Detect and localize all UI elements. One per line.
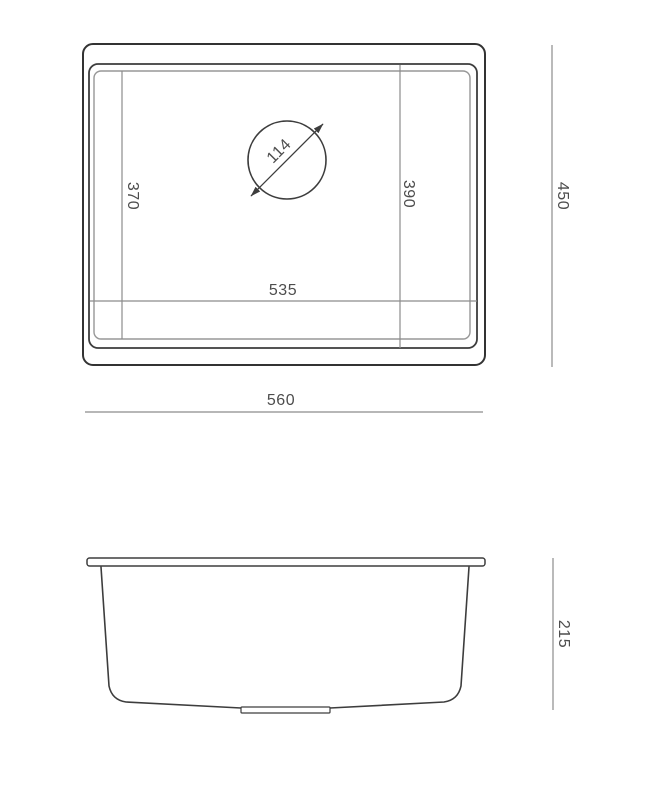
bowl-profile xyxy=(101,567,469,708)
drain-outlet xyxy=(241,707,330,713)
sink-outer-edge xyxy=(83,44,485,365)
drain-diameter-label: 114 xyxy=(264,136,295,167)
bowl-width-label: 535 xyxy=(269,282,297,299)
top-view: 114 370 390 535 450 560 xyxy=(83,44,571,412)
bowl-depth-left-label: 370 xyxy=(124,182,141,210)
bowl-rim-outer xyxy=(89,64,477,348)
sink-flange xyxy=(87,558,485,566)
drain-diameter-line xyxy=(251,124,323,196)
bowl-height-label: 215 xyxy=(555,620,572,648)
bowl-depth-right-label: 390 xyxy=(400,180,417,208)
sink-technical-drawing: 114 370 390 535 450 560 215 xyxy=(0,0,646,800)
overall-depth-label: 450 xyxy=(554,182,571,210)
side-view: 215 xyxy=(87,558,572,713)
drawing-canvas: 114 370 390 535 450 560 215 xyxy=(0,0,646,800)
overall-width-label: 560 xyxy=(267,392,295,409)
